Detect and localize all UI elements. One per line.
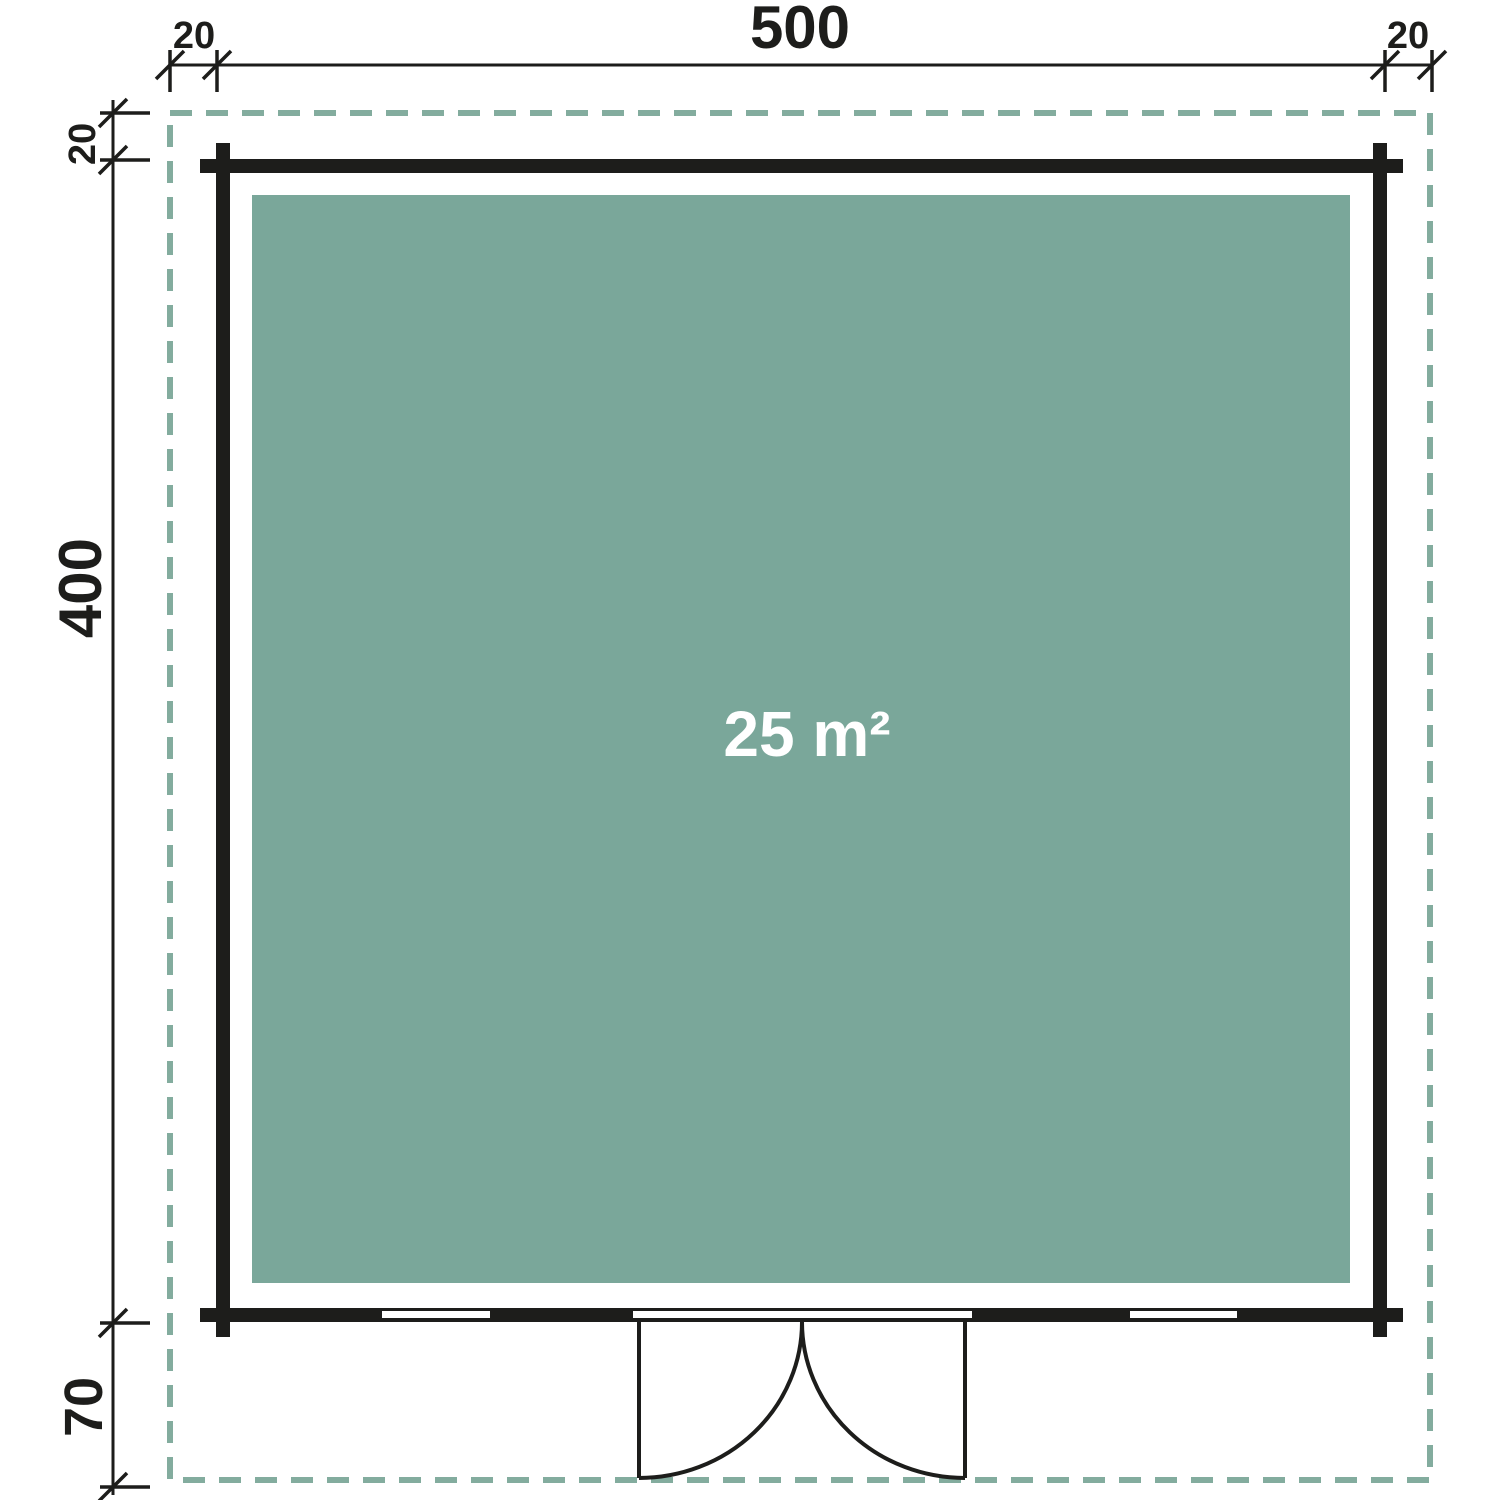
dim-label-overhang-left-top: 20 — [62, 123, 104, 165]
door-swing-arc-right — [802, 1322, 965, 1478]
dim-label-depth: 400 — [47, 538, 114, 638]
floor-plan: 20 500 20 20 400 70 25 m² — [0, 0, 1500, 1500]
area-label: 25 m² — [723, 698, 890, 770]
dim-label-overhang-top-left: 20 — [173, 15, 215, 57]
left-wall — [216, 143, 230, 1337]
door-swing-arc-left — [639, 1322, 802, 1478]
left-window — [382, 1311, 490, 1318]
top-wall — [200, 159, 1403, 173]
door-threshold — [633, 1311, 972, 1318]
dim-label-overhang-top-right: 20 — [1387, 15, 1429, 57]
double-door — [639, 1322, 965, 1478]
right-wall — [1373, 143, 1387, 1337]
dim-label-front-porch-depth: 70 — [54, 1377, 114, 1437]
dimension-ticks-left — [99, 99, 150, 1500]
floor-plan-drawing: 20 500 20 20 400 70 25 m² — [0, 0, 1500, 1500]
dim-label-width: 500 — [750, 0, 850, 61]
dimension-chain-left — [99, 99, 150, 1500]
right-window — [1130, 1311, 1237, 1318]
